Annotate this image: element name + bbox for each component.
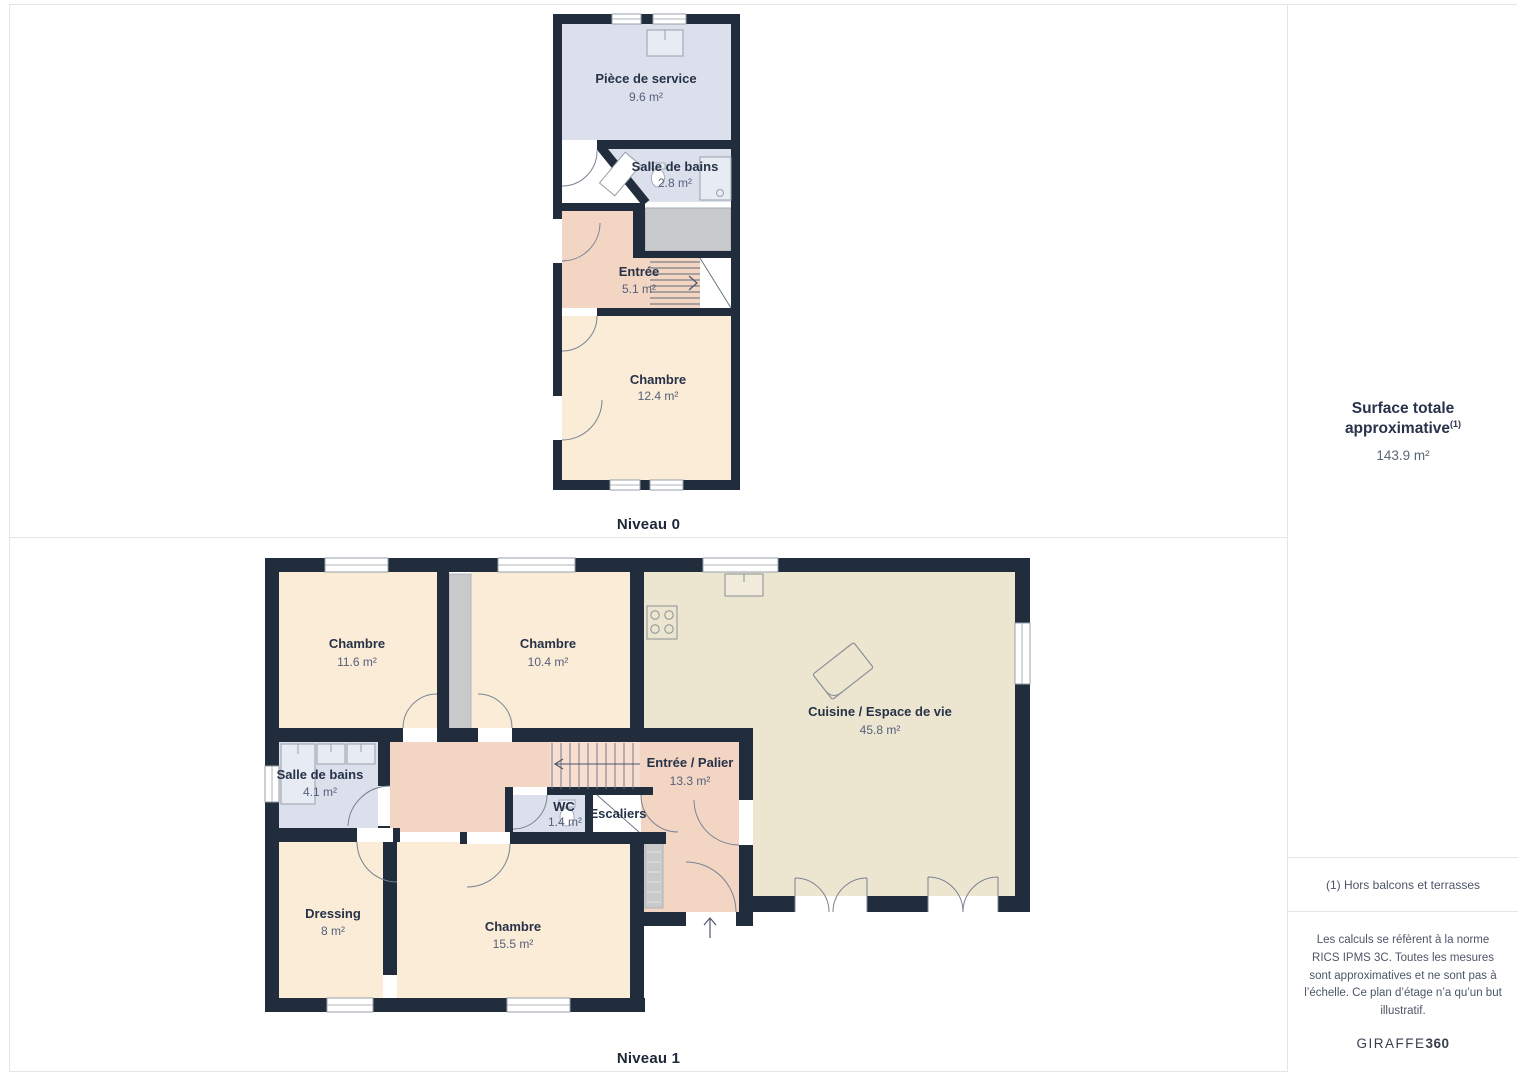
total-area-value: 143.9 m² — [1376, 448, 1429, 463]
hallway-floor — [390, 740, 512, 832]
room-name: Pièce de service — [595, 71, 696, 86]
total-area-section: Surface totale approximative(1) 143.9 m² — [1288, 5, 1518, 857]
footnote-text: (1) Hors balcons et terrasses — [1326, 878, 1480, 892]
brand-name: GIRAFFE — [1356, 1036, 1425, 1051]
room-area: 45.8 m² — [860, 723, 901, 737]
room-name: Chambre — [485, 919, 541, 934]
legal-section: Les calculs se réfèrent à la norme RICS … — [1288, 911, 1518, 1072]
room-name: Entrée / Palier — [647, 755, 734, 770]
room-name: Chambre — [329, 636, 385, 651]
room-area: 13.3 m² — [670, 774, 711, 788]
room-area: 12.4 m² — [638, 389, 679, 403]
level-1-label: Niveau 1 — [10, 1050, 1287, 1067]
room-area: 1.4 m² — [548, 815, 582, 829]
disclaimer-text: Les calculs se réfèrent à la norme RICS … — [1304, 932, 1502, 1021]
room-name: Salle de bains — [632, 159, 719, 174]
floor-plan-level-0: Pièce de service 9.6 m² Salle de bains 2… — [551, 12, 741, 492]
stairs-floor — [550, 742, 640, 790]
room-area: 11.6 m² — [337, 655, 377, 669]
levels-divider — [10, 537, 1287, 538]
room-name: Chambre — [520, 636, 576, 651]
total-area-title-text: Surface totale approximative — [1345, 400, 1454, 437]
summary-sidebar: Surface totale approximative(1) 143.9 m²… — [1287, 5, 1518, 1072]
room-area: 10.4 m² — [528, 655, 569, 669]
plans-area: Pièce de service 9.6 m² Salle de bains 2… — [10, 5, 1287, 1072]
room-name: WC — [553, 799, 575, 814]
floorplan-page: Pièce de service 9.6 m² Salle de bains 2… — [0, 0, 1526, 1079]
room-name: Chambre — [630, 372, 686, 387]
window — [1015, 623, 1030, 684]
brand-suffix: 360 — [1425, 1036, 1449, 1051]
giraffe360-logo: GIRAFFE360 — [1304, 1036, 1502, 1051]
room-area: 8 m² — [321, 924, 345, 938]
floor-plan-level-1: Chambre 11.6 m² Chambre 10.4 m² Cuisine … — [263, 556, 1033, 1014]
footnote-marker: (1) — [1450, 419, 1461, 429]
room-area: 4.1 m² — [303, 785, 337, 799]
vestibule-floor — [562, 148, 598, 203]
room-area: 15.5 m² — [493, 937, 534, 951]
room-name: Salle de bains — [277, 767, 364, 782]
duct-shaft — [449, 574, 471, 732]
room-name: Entrée — [619, 264, 659, 279]
room-area: 2.8 m² — [658, 176, 692, 190]
room-name: Dressing — [305, 906, 361, 921]
level-0-label: Niveau 0 — [10, 516, 1287, 533]
room-name: Cuisine / Espace de vie — [808, 704, 952, 719]
room-name: Escaliers — [589, 806, 646, 821]
total-area-title: Surface totale approximative(1) — [1288, 399, 1518, 439]
room-area: 9.6 m² — [629, 90, 663, 104]
footnote-section: (1) Hors balcons et terrasses — [1288, 857, 1518, 911]
balcony — [645, 208, 731, 251]
balcony-gap — [645, 203, 731, 208]
room-area: 5.1 m² — [622, 282, 656, 296]
